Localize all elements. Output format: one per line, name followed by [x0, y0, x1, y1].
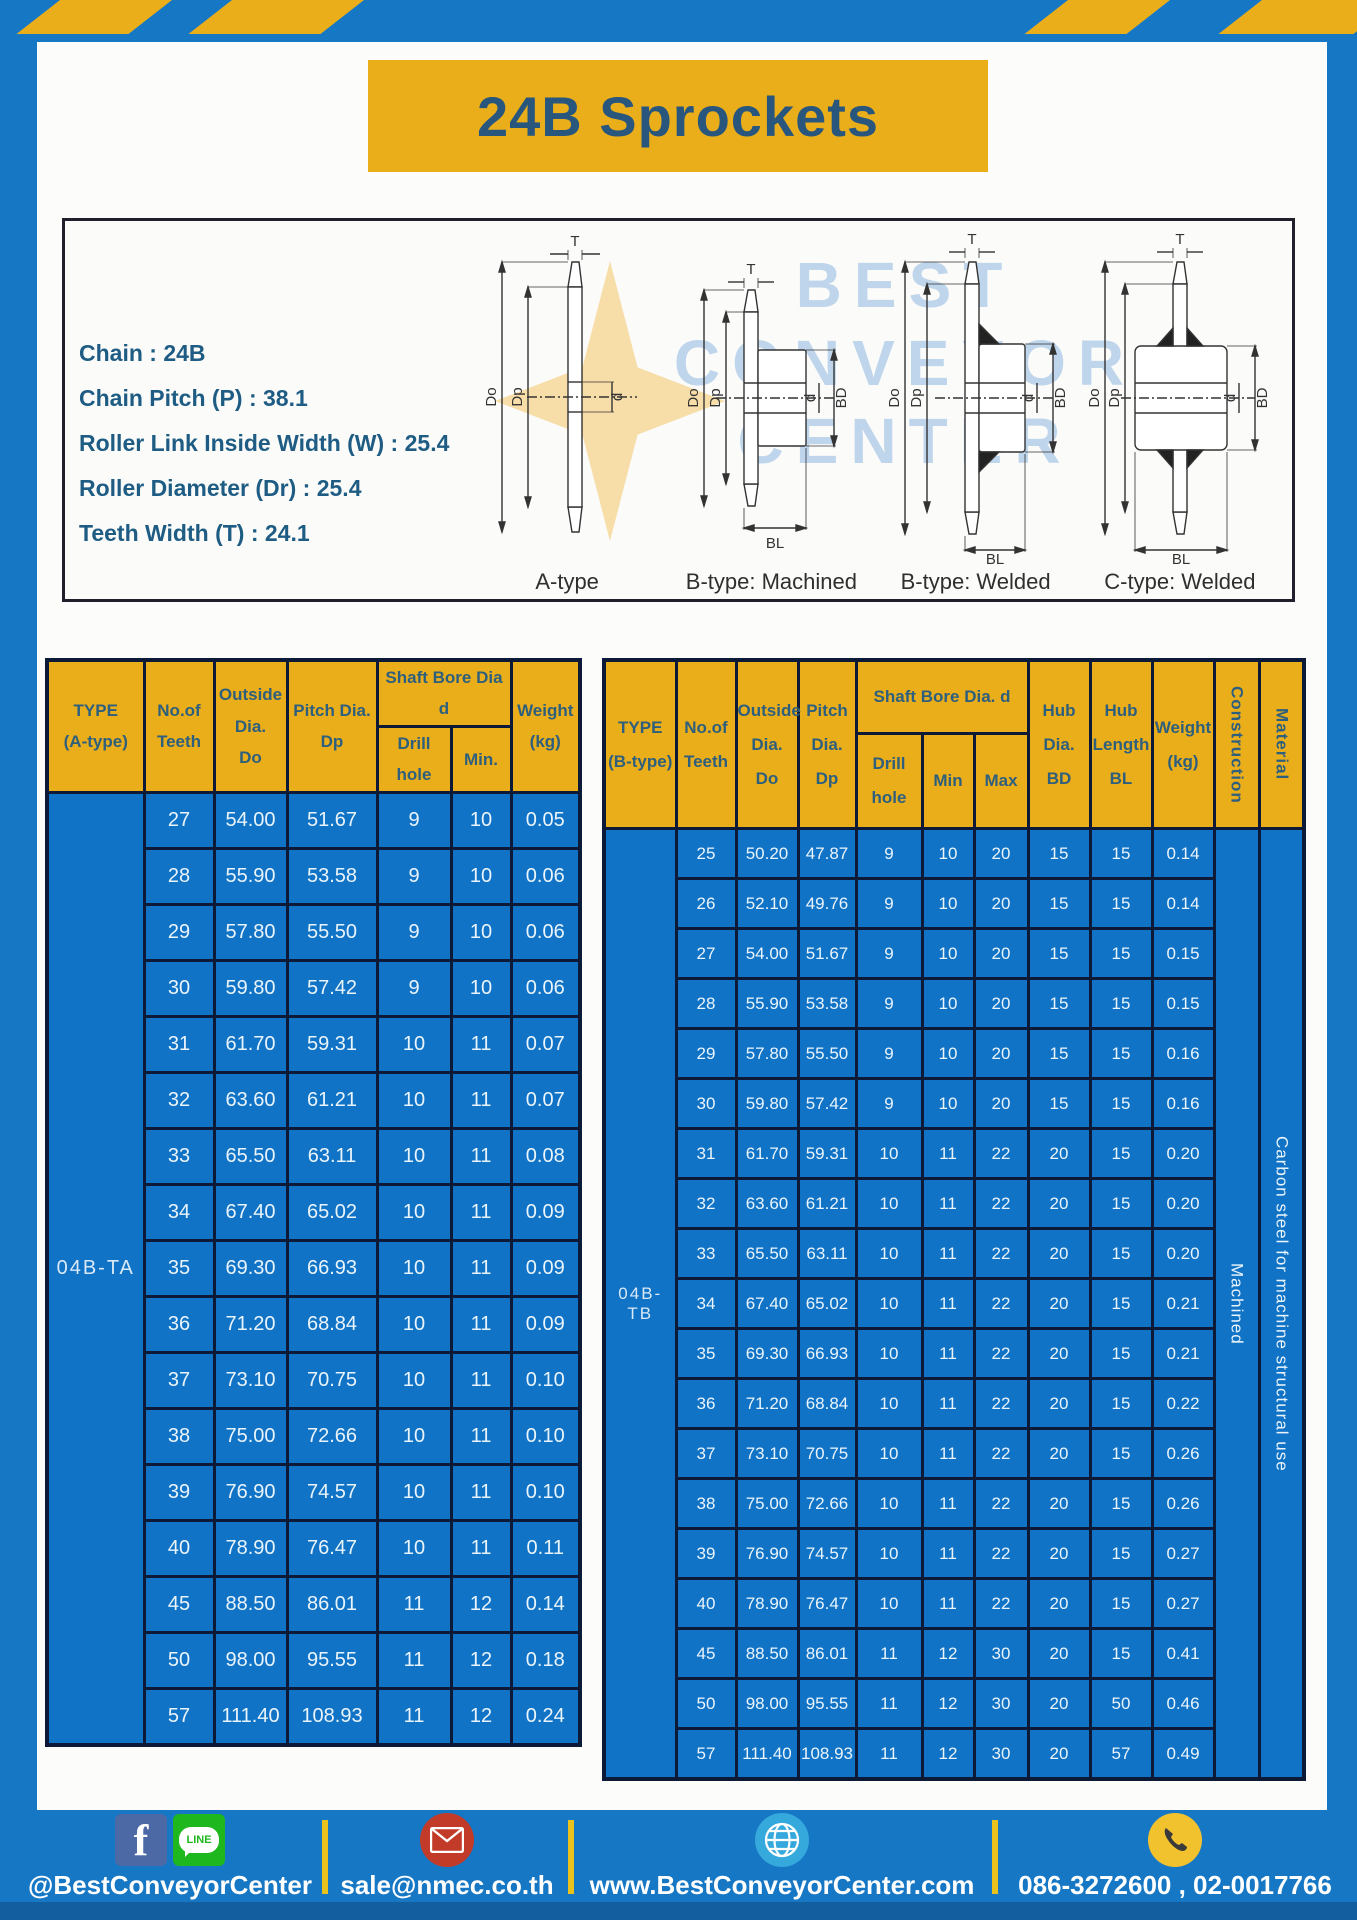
data-cell: 10 — [856, 1529, 922, 1579]
data-cell: 28 — [676, 979, 736, 1029]
col-header-drill-hole: Drill hole — [377, 726, 451, 792]
data-cell: 15 — [1090, 979, 1152, 1029]
data-cell: 88.50 — [214, 1576, 287, 1632]
data-cell: 11 — [922, 1579, 974, 1629]
hazard-stripe — [188, 0, 364, 34]
data-cell: 45 — [676, 1629, 736, 1679]
svg-text:Dp: Dp — [707, 388, 724, 407]
globe-icon[interactable] — [755, 1813, 809, 1867]
svg-text:BD: BD — [1052, 387, 1069, 408]
data-cell: 15 — [1090, 929, 1152, 979]
data-cell: 10 — [377, 1184, 451, 1240]
data-cell: 38 — [144, 1408, 214, 1464]
table-row: 4588.5086.0111123020150.41 — [604, 1629, 1304, 1679]
col-header-shaft-bore: Shaft Bore Dia. d — [856, 660, 1028, 734]
data-cell: 10 — [922, 929, 974, 979]
data-cell: 0.09 — [511, 1240, 580, 1296]
data-cell: 30 — [974, 1729, 1028, 1780]
svg-text:T: T — [747, 261, 756, 278]
data-cell: 15 — [1090, 829, 1152, 879]
data-cell: 31 — [144, 1016, 214, 1072]
table-row: 3467.4065.0210112220150.21 — [604, 1279, 1304, 1329]
data-cell: 27 — [676, 929, 736, 979]
spec-line: Teeth Width (T) : 24.1 — [79, 511, 449, 556]
col-header-teeth: No.of Teeth — [144, 660, 214, 792]
table-row: 5098.0095.5511123020500.46 — [604, 1679, 1304, 1729]
sprocket-figures: T Do Dp d A-type — [465, 227, 1282, 595]
data-cell: 9 — [856, 879, 922, 929]
social-handle[interactable]: @BestConveyorCenter — [28, 1870, 312, 1901]
data-cell: 55.90 — [736, 979, 798, 1029]
type-label: 04B-TB — [604, 829, 676, 1780]
data-cell: 98.00 — [736, 1679, 798, 1729]
data-cell: 20 — [1028, 1479, 1090, 1529]
data-cell: 55.50 — [798, 1029, 856, 1079]
data-cell: 55.50 — [287, 904, 377, 960]
data-cell: 15 — [1090, 1379, 1152, 1429]
figure-caption: B-type: Welded — [901, 569, 1051, 595]
datasheet-page: 24B Sprockets BEST CONVEYOR CENTER Chain… — [0, 0, 1357, 1920]
table-row: 2652.1049.769102015150.14 — [604, 879, 1304, 929]
footer-website[interactable]: www.BestConveyorCenter.com — [578, 1814, 986, 1901]
data-cell: 37 — [676, 1429, 736, 1479]
svg-text:Do: Do — [685, 388, 702, 407]
svg-text:d: d — [1020, 394, 1037, 402]
footer-social[interactable]: f LINE @BestConveyorCenter — [30, 1814, 310, 1901]
data-cell: 34 — [676, 1279, 736, 1329]
data-cell: 10 — [922, 979, 974, 1029]
line-bubble-tail — [185, 1850, 192, 1857]
data-cell: 15 — [1090, 1029, 1152, 1079]
data-cell: 52.10 — [736, 879, 798, 929]
data-cell: 70.75 — [798, 1429, 856, 1479]
footer-divider — [568, 1820, 574, 1894]
data-cell: 10 — [451, 904, 511, 960]
figure-caption: B-type: Machined — [686, 569, 857, 595]
data-cell: 34 — [144, 1184, 214, 1240]
data-cell: 22 — [974, 1129, 1028, 1179]
data-cell: 76.90 — [214, 1464, 287, 1520]
data-cell: 78.90 — [214, 1520, 287, 1576]
data-cell: 15 — [1090, 1229, 1152, 1279]
data-cell: 28 — [144, 848, 214, 904]
table-row: 3875.0072.6610112220150.26 — [604, 1479, 1304, 1529]
data-cell: 51.67 — [287, 792, 377, 848]
svg-text:T: T — [967, 231, 976, 248]
data-cell: 10 — [451, 792, 511, 848]
data-cell: 15 — [1090, 1079, 1152, 1129]
data-cell: 57 — [144, 1688, 214, 1745]
data-cell: 10 — [922, 1079, 974, 1129]
col-header-max: Max — [974, 734, 1028, 829]
data-cell: 73.10 — [214, 1352, 287, 1408]
a-type-drawing: T Do Dp d — [472, 227, 662, 567]
data-cell: 71.20 — [214, 1296, 287, 1352]
data-cell: 10 — [856, 1329, 922, 1379]
data-cell: 0.10 — [511, 1464, 580, 1520]
data-cell: 88.50 — [736, 1629, 798, 1679]
data-cell: 9 — [856, 979, 922, 1029]
data-cell: 0.20 — [1152, 1179, 1214, 1229]
data-cell: 11 — [451, 1072, 511, 1128]
table-row: 3773.1070.7510112220150.26 — [604, 1429, 1304, 1479]
data-cell: 95.55 — [287, 1632, 377, 1688]
data-cell: 9 — [856, 929, 922, 979]
data-cell: 72.66 — [798, 1479, 856, 1529]
data-cell: 22 — [974, 1179, 1028, 1229]
data-cell: 33 — [676, 1229, 736, 1279]
footer-divider — [992, 1820, 998, 1894]
data-cell: 15 — [1028, 879, 1090, 929]
data-cell: 0.14 — [1152, 879, 1214, 929]
data-cell: 0.15 — [1152, 929, 1214, 979]
footer-email[interactable]: sale@nmec.co.th — [332, 1814, 562, 1901]
page-title: 24B Sprockets — [477, 84, 879, 149]
data-cell: 15 — [1090, 1579, 1152, 1629]
data-cell: 53.58 — [287, 848, 377, 904]
hazard-stripe — [1024, 0, 1170, 34]
data-cell: 54.00 — [736, 929, 798, 979]
table-row: 57111.40108.9311123020570.49 — [604, 1729, 1304, 1780]
figure-b-type-machined: T Do Dp d BD BL B-type: Machined — [669, 227, 873, 595]
data-cell: 0.07 — [511, 1016, 580, 1072]
data-cell: 49.76 — [798, 879, 856, 929]
col-header-min: Min — [922, 734, 974, 829]
data-cell: 10 — [377, 1016, 451, 1072]
data-cell: 65.02 — [287, 1184, 377, 1240]
data-cell: 57.80 — [736, 1029, 798, 1079]
data-cell: 20 — [1028, 1679, 1090, 1729]
data-cell: 30 — [676, 1079, 736, 1129]
hazard-stripe — [1218, 0, 1357, 34]
b-type-machined-drawing: T Do Dp d BD BL — [676, 227, 866, 567]
data-cell: 20 — [1028, 1179, 1090, 1229]
data-cell: 0.26 — [1152, 1479, 1214, 1529]
data-cell: 35 — [676, 1329, 736, 1379]
data-cell: 10 — [922, 829, 974, 879]
data-cell: 63.60 — [736, 1179, 798, 1229]
spec-line: Chain Pitch (P) : 38.1 — [79, 376, 449, 421]
data-cell: 11 — [377, 1688, 451, 1745]
line-icon[interactable]: LINE — [173, 1814, 225, 1866]
data-cell: 40 — [144, 1520, 214, 1576]
data-cell: 22 — [974, 1429, 1028, 1479]
data-cell: 0.10 — [511, 1352, 580, 1408]
table-row: 04B-TB2550.2047.879102015150.14MachinedC… — [604, 829, 1304, 879]
data-cell: 75.00 — [214, 1408, 287, 1464]
col-header-construction: Construction — [1214, 660, 1259, 829]
col-header-pitch-dia: Pitch Dia. Dp — [798, 660, 856, 829]
data-cell: 0.09 — [511, 1296, 580, 1352]
data-cell: 65.02 — [798, 1279, 856, 1329]
data-cell: 0.20 — [1152, 1129, 1214, 1179]
data-cell: 40 — [676, 1579, 736, 1629]
data-cell: 15 — [1028, 1079, 1090, 1129]
data-cell: 11 — [451, 1184, 511, 1240]
data-cell: 11 — [922, 1229, 974, 1279]
data-cell: 73.10 — [736, 1429, 798, 1479]
col-header-weight: Weight (kg) — [1152, 660, 1214, 829]
data-cell: 0.46 — [1152, 1679, 1214, 1729]
data-cell: 10 — [377, 1408, 451, 1464]
col-header-drill-hole: Drill hole — [856, 734, 922, 829]
figure-caption: A-type — [535, 569, 599, 595]
data-cell: 9 — [377, 848, 451, 904]
data-cell: 78.90 — [736, 1579, 798, 1629]
data-cell: 11 — [451, 1464, 511, 1520]
data-cell: 26 — [676, 879, 736, 929]
data-cell: 63.11 — [287, 1128, 377, 1184]
data-cell: 63.11 — [798, 1229, 856, 1279]
data-cell: 57 — [1090, 1729, 1152, 1780]
data-cell: 11 — [451, 1296, 511, 1352]
svg-text:Do: Do — [483, 387, 500, 406]
data-cell: 10 — [856, 1379, 922, 1429]
email-icon[interactable] — [420, 1813, 474, 1867]
data-cell: 22 — [974, 1479, 1028, 1529]
data-cell: 74.57 — [287, 1464, 377, 1520]
data-cell: 20 — [974, 1079, 1028, 1129]
figure-caption: C-type: Welded — [1104, 569, 1255, 595]
data-cell: 11 — [922, 1429, 974, 1479]
data-cell: 75.00 — [736, 1479, 798, 1529]
website-url[interactable]: www.BestConveyorCenter.com — [590, 1870, 975, 1901]
data-cell: 15 — [1090, 1279, 1152, 1329]
data-cell: 11 — [451, 1520, 511, 1576]
data-cell: 25 — [676, 829, 736, 879]
data-cell: 36 — [676, 1379, 736, 1429]
col-header-material: Material — [1259, 660, 1304, 829]
data-cell: 12 — [451, 1632, 511, 1688]
col-header-hub-length: Hub Length BL — [1090, 660, 1152, 829]
data-cell: 20 — [974, 879, 1028, 929]
table-a-body: 04B-TA2754.0051.679100.052855.9053.58910… — [47, 792, 580, 1745]
data-cell: 11 — [451, 1408, 511, 1464]
data-cell: 98.00 — [214, 1632, 287, 1688]
data-cell: 15 — [1090, 879, 1152, 929]
data-cell: 86.01 — [798, 1629, 856, 1679]
table-a-header: TYPE (A-type) No.of Teeth Outside Dia. D… — [47, 660, 580, 792]
svg-text:Do: Do — [1086, 388, 1103, 407]
spec-line: Roller Link Inside Width (W) : 25.4 — [79, 421, 449, 466]
data-cell: 50 — [676, 1679, 736, 1729]
table-row: 04B-TA2754.0051.679100.05 — [47, 792, 580, 848]
data-cell: 27 — [144, 792, 214, 848]
col-header-type: TYPE (A-type) — [47, 660, 144, 792]
footer-phone[interactable]: 086-3272600 , 02-0017766 — [1000, 1814, 1350, 1901]
data-cell: 0.27 — [1152, 1529, 1214, 1579]
hazard-stripe — [16, 0, 172, 34]
b-type-welded-drawing: T Do Dp d BD BL — [881, 227, 1071, 567]
data-cell: 0.41 — [1152, 1629, 1214, 1679]
data-cell: 38 — [676, 1479, 736, 1529]
material-value: Carbon steel for machine structural use — [1259, 829, 1304, 1780]
col-header-type: TYPE (B-type) — [604, 660, 676, 829]
data-cell: 29 — [676, 1029, 736, 1079]
data-cell: 30 — [974, 1679, 1028, 1729]
data-cell: 15 — [1090, 1629, 1152, 1679]
data-cell: 39 — [676, 1529, 736, 1579]
data-cell: 66.93 — [287, 1240, 377, 1296]
data-cell: 10 — [377, 1296, 451, 1352]
col-header-weight: Weight (kg) — [511, 660, 580, 792]
svg-text:T: T — [571, 233, 580, 250]
data-cell: 0.14 — [511, 1576, 580, 1632]
data-cell: 37 — [144, 1352, 214, 1408]
data-cell: 29 — [144, 904, 214, 960]
data-cell: 63.60 — [214, 1072, 287, 1128]
table-row: 3671.2068.8410112220150.22 — [604, 1379, 1304, 1429]
data-cell: 20 — [974, 979, 1028, 1029]
diagram-panel: BEST CONVEYOR CENTER Chain : 24B Chain P… — [62, 218, 1295, 602]
data-cell: 108.93 — [798, 1729, 856, 1780]
data-cell: 11 — [856, 1629, 922, 1679]
data-cell: 67.40 — [214, 1184, 287, 1240]
data-cell: 50 — [1090, 1679, 1152, 1729]
data-cell: 9 — [377, 904, 451, 960]
svg-text:BL: BL — [1172, 551, 1190, 567]
data-cell: 47.87 — [798, 829, 856, 879]
data-cell: 61.70 — [214, 1016, 287, 1072]
data-cell: 11 — [922, 1129, 974, 1179]
data-cell: 10 — [922, 1029, 974, 1079]
svg-text:Dp: Dp — [509, 387, 526, 406]
data-cell: 86.01 — [287, 1576, 377, 1632]
phone-icon[interactable] — [1148, 1813, 1202, 1867]
footer-divider — [322, 1820, 328, 1894]
data-cell: 22 — [974, 1229, 1028, 1279]
data-cell: 65.50 — [736, 1229, 798, 1279]
data-cell: 0.05 — [511, 792, 580, 848]
data-cell: 10 — [856, 1279, 922, 1329]
data-cell: 15 — [1028, 929, 1090, 979]
data-cell: 11 — [451, 1240, 511, 1296]
data-cell: 15 — [1090, 1129, 1152, 1179]
data-cell: 12 — [451, 1576, 511, 1632]
data-cell: 0.18 — [511, 1632, 580, 1688]
data-cell: 72.66 — [287, 1408, 377, 1464]
figure-b-type-welded: T Do Dp d BD BL B-type: Welded — [874, 227, 1078, 595]
b-type-spec-table: TYPE (B-type) No.of Teeth Outside Dia. D… — [602, 658, 1306, 1781]
c-type-welded-drawing: T Do Dp d BD BL — [1085, 227, 1275, 567]
data-cell: 59.31 — [798, 1129, 856, 1179]
data-cell: 22 — [974, 1379, 1028, 1429]
data-cell: 0.16 — [1152, 1029, 1214, 1079]
data-cell: 11 — [856, 1729, 922, 1780]
data-cell: 74.57 — [798, 1529, 856, 1579]
data-cell: 76.47 — [287, 1520, 377, 1576]
data-cell: 108.93 — [287, 1688, 377, 1745]
data-cell: 111.40 — [214, 1688, 287, 1745]
data-cell: 20 — [1028, 1629, 1090, 1679]
table-row: 3569.3066.9310112220150.21 — [604, 1329, 1304, 1379]
data-cell: 12 — [451, 1688, 511, 1745]
data-cell: 10 — [856, 1579, 922, 1629]
data-cell: 11 — [922, 1529, 974, 1579]
svg-text:Dp: Dp — [1106, 388, 1123, 407]
data-cell: 11 — [856, 1679, 922, 1729]
svg-text:BL: BL — [766, 535, 784, 552]
data-cell: 61.21 — [798, 1179, 856, 1229]
svg-text:d: d — [802, 394, 819, 402]
data-cell: 69.30 — [214, 1240, 287, 1296]
data-cell: 61.21 — [287, 1072, 377, 1128]
data-cell: 0.26 — [1152, 1429, 1214, 1479]
spec-line: Chain : 24B — [79, 331, 449, 376]
data-cell: 20 — [974, 829, 1028, 879]
facebook-icon[interactable]: f — [115, 1814, 167, 1866]
spec-line: Roller Diameter (Dr) : 25.4 — [79, 466, 449, 511]
data-cell: 11 — [377, 1632, 451, 1688]
svg-text:d: d — [1222, 394, 1239, 402]
data-cell: 30 — [974, 1629, 1028, 1679]
data-cell: 66.93 — [798, 1329, 856, 1379]
data-cell: 0.16 — [1152, 1079, 1214, 1129]
data-cell: 20 — [1028, 1529, 1090, 1579]
data-cell: 11 — [922, 1279, 974, 1329]
table-b-body: 04B-TB2550.2047.879102015150.14MachinedC… — [604, 829, 1304, 1780]
data-cell: 30 — [144, 960, 214, 1016]
data-cell: 10 — [377, 1240, 451, 1296]
data-cell: 45 — [144, 1576, 214, 1632]
data-cell: 22 — [974, 1529, 1028, 1579]
data-cell: 12 — [922, 1629, 974, 1679]
data-cell: 67.40 — [736, 1279, 798, 1329]
data-cell: 15 — [1090, 1529, 1152, 1579]
table-row: 3059.8057.429102015150.16 — [604, 1079, 1304, 1129]
col-header-min: Min. — [451, 726, 511, 792]
data-cell: 57.42 — [287, 960, 377, 1016]
data-cell: 0.06 — [511, 904, 580, 960]
svg-text:T: T — [1175, 231, 1184, 248]
phone-numbers[interactable]: 086-3272600 , 02-0017766 — [1018, 1870, 1332, 1901]
data-cell: 12 — [922, 1729, 974, 1780]
data-cell: 71.20 — [736, 1379, 798, 1429]
svg-text:Do: Do — [886, 388, 903, 407]
data-cell: 61.70 — [736, 1129, 798, 1179]
data-cell: 20 — [1028, 1579, 1090, 1629]
data-cell: 59.80 — [214, 960, 287, 1016]
svg-text:BD: BD — [833, 387, 850, 408]
data-cell: 0.10 — [511, 1408, 580, 1464]
data-cell: 76.90 — [736, 1529, 798, 1579]
data-cell: 9 — [856, 829, 922, 879]
data-cell: 15 — [1028, 829, 1090, 879]
data-cell: 59.31 — [287, 1016, 377, 1072]
data-cell: 20 — [1028, 1129, 1090, 1179]
a-type-spec-table: TYPE (A-type) No.of Teeth Outside Dia. D… — [45, 658, 582, 1747]
col-header-shaft-bore: Shaft Bore Dia d — [377, 660, 511, 726]
data-cell: 15 — [1090, 1329, 1152, 1379]
data-cell: 11 — [377, 1576, 451, 1632]
data-cell: 9 — [377, 960, 451, 1016]
data-cell: 55.90 — [214, 848, 287, 904]
data-cell: 12 — [922, 1679, 974, 1729]
email-address[interactable]: sale@nmec.co.th — [340, 1870, 553, 1901]
data-cell: 10 — [856, 1229, 922, 1279]
figure-c-type-welded: T Do Dp d BD BL C-type: Welded — [1078, 227, 1282, 595]
data-cell: 0.14 — [1152, 829, 1214, 879]
data-cell: 57.42 — [798, 1079, 856, 1129]
data-cell: 22 — [974, 1329, 1028, 1379]
table-row: 2855.9053.589102015150.15 — [604, 979, 1304, 1029]
data-cell: 53.58 — [798, 979, 856, 1029]
data-cell: 20 — [974, 929, 1028, 979]
data-cell: 68.84 — [287, 1296, 377, 1352]
svg-text:Dp: Dp — [908, 388, 925, 407]
data-cell: 0.20 — [1152, 1229, 1214, 1279]
data-cell: 11 — [922, 1329, 974, 1379]
